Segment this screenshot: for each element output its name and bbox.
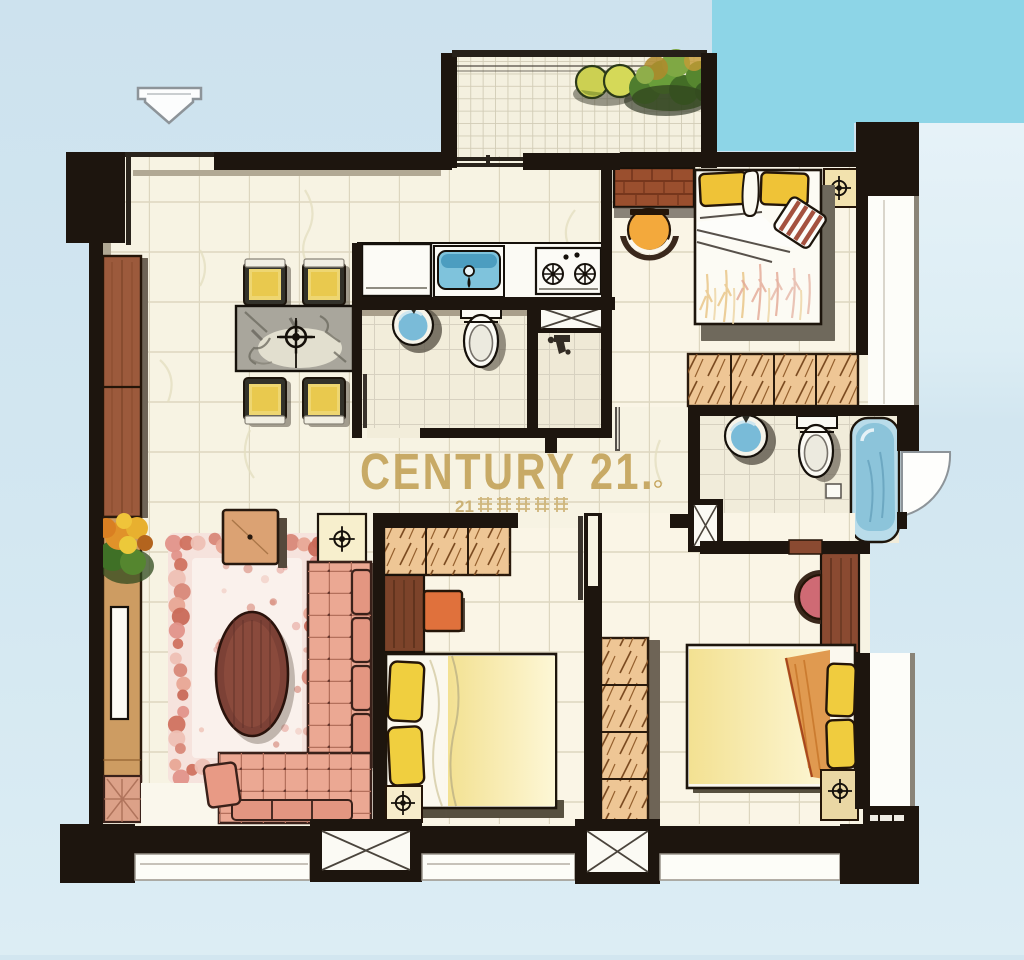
svg-text:CENTURY 21.: CENTURY 21.: [360, 443, 655, 500]
svg-text:21: 21: [455, 497, 474, 516]
